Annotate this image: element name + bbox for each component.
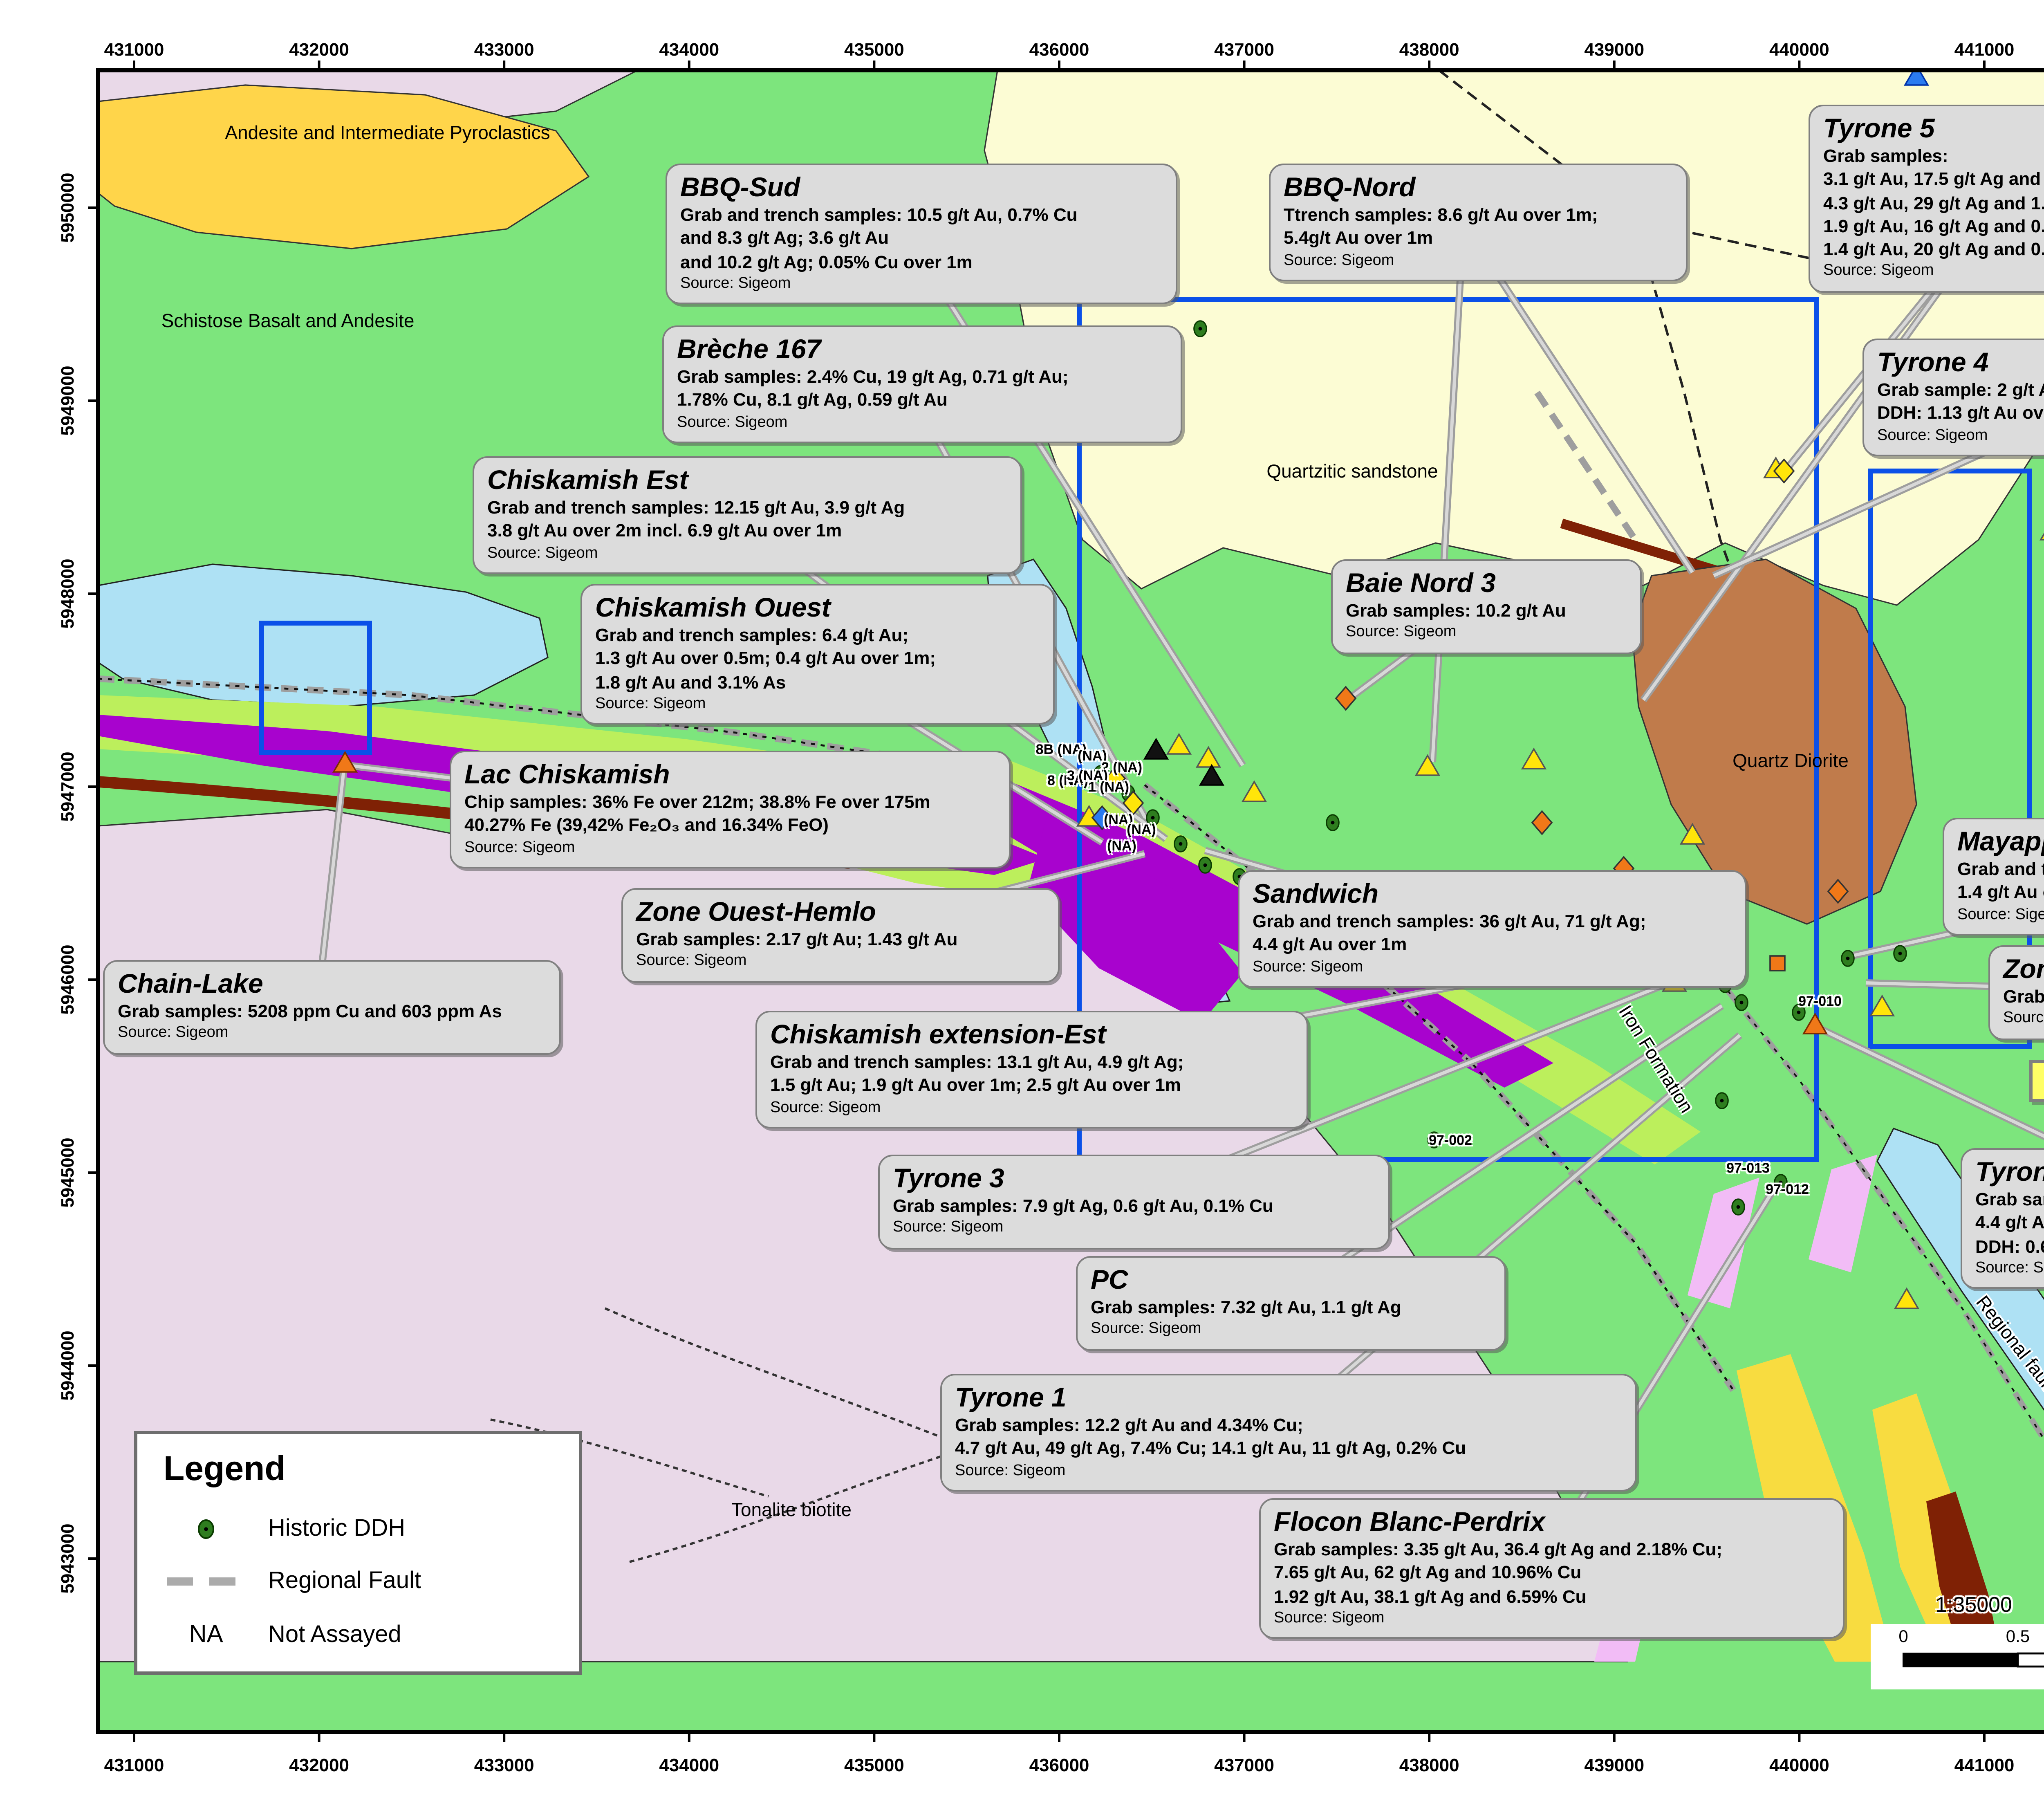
axis-left-5943000: 5943000	[59, 1523, 78, 1593]
callout-line: Grab and trench samples: 3.3 g/t Au; 0.5…	[1957, 859, 2044, 882]
callout-zone-ph: Zone PHGrab sample: 13.8 g/t Au, 17.2 g/…	[1988, 945, 2044, 1039]
tyrone-geology-map-page: 4310004310004320004320004330004330004340…	[0, 0, 2044, 1799]
ddh-label-12: 97-012	[1766, 1181, 1809, 1197]
callout-source: Source: Sigeom	[487, 544, 1007, 564]
legend-title: Legend	[164, 1451, 579, 1490]
scale-bar: 0 0.5 1 Km	[1871, 1624, 2044, 1689]
callout-line: 3.1 g/t Au, 17.5 g/t Ag and 0.95% Cu	[1823, 169, 2044, 192]
callout-line: 1.4 g/t Au, 20 g/t Ag and 0.5% Cu	[1823, 239, 2044, 262]
perseus-annotation: Approximate Location Perseus Nickel Disc…	[2029, 1060, 2044, 1102]
callout-line: Grab and trench samples: 12.15 g/t Au, 3…	[487, 497, 1007, 520]
callout-title: Baie Nord 3	[1346, 569, 1627, 600]
axis-bottom-436000: 436000	[1029, 1756, 1089, 1776]
ddh-dot-icon	[164, 1516, 249, 1542]
callout-line: Grab samples: 3.35 g/t Au, 36.4 g/t Ag a…	[1274, 1539, 1830, 1562]
scale-ratio: 1:35000	[1935, 1592, 2012, 1617]
legend-item-regional-fault: Regional Fault	[164, 1568, 579, 1595]
callout-line: Grab and trench samples: 13.1 g/t Au, 4.…	[770, 1052, 1293, 1075]
callout-breche-167: Brèche 167Grab samples: 2.4% Cu, 19 g/t …	[662, 325, 1182, 443]
axis-bottom-439000: 439000	[1584, 1756, 1644, 1776]
callout-line: Grab samples: 0,5 g/t Au, 18 g/t Ag, and…	[1975, 1189, 2044, 1212]
callout-line: Grab samples:	[1823, 146, 2044, 169]
callout-title: Zone Ouest-Hemlo	[636, 898, 1045, 929]
callout-line: 4.4 g/t Au, 108 g/t Ag and 1.2% Cu	[1975, 1212, 2044, 1236]
callout-source: Source: Sigeom	[1975, 1259, 2044, 1279]
callout-title: Tyrone 2	[1975, 1158, 2044, 1189]
ddh-label-5: 1 (NA)	[1088, 778, 1129, 795]
na-symbol: NA	[164, 1621, 249, 1649]
callout-tyrone-4: Tyrone 4Grab sample: 2 g/t Au, 0.5% Cu a…	[1862, 339, 2044, 456]
callout-tyrone-1: Tyrone 1Grab samples: 12.2 g/t Au and 4.…	[940, 1374, 1637, 1492]
axis-top-431000: 431000	[104, 41, 164, 61]
callout-chiskamish-est: Chiskamish EstGrab and trench samples: 1…	[473, 456, 1022, 574]
axis-top-441000: 441000	[1954, 41, 2015, 61]
callout-title: Flocon Blanc-Perdrix	[1274, 1508, 1830, 1539]
ddh-marker	[1174, 836, 1187, 852]
ddh-marker	[1842, 951, 1854, 966]
callout-line: Grab samples: 7.32 g/t Au, 1.1 g/t Ag	[1091, 1297, 1491, 1320]
callout-line: Grab and trench samples: 6.4 g/t Au;	[595, 625, 1040, 648]
callout-title: Brèche 167	[677, 335, 1168, 366]
callout-line: 1.5 g/t Au; 1.9 g/t Au over 1m; 2.5 g/t …	[770, 1075, 1293, 1098]
ddh-marker	[1894, 946, 1906, 961]
legend-item-not-assayed: NA Not Assayed	[164, 1621, 579, 1649]
callout-source: Source: Sigeom	[636, 952, 1045, 972]
callout-source: Source: Sigeom	[2003, 1009, 2044, 1030]
callout-source: Source: Sigeom	[1253, 958, 1732, 978]
axis-top-435000: 435000	[844, 41, 904, 61]
axis-bottom-431000: 431000	[104, 1756, 164, 1776]
ddh-label-10: 97-002	[1429, 1132, 1472, 1148]
callout-sandwich: SandwichGrab and trench samples: 36 g/t …	[1238, 870, 1746, 988]
callout-source: Source: Sigeom	[893, 1219, 1375, 1239]
callout-chiskamish-extension-est: Chiskamish extension-EstGrab and trench …	[755, 1011, 1308, 1128]
axis-top-436000: 436000	[1029, 41, 1089, 61]
legend-label: Not Assayed	[268, 1622, 401, 1648]
axis-bottom-437000: 437000	[1214, 1756, 1274, 1776]
callout-zone-ouest-hemlo: Zone Ouest-HemloGrab samples: 2.17 g/t A…	[621, 888, 1060, 982]
callout-source: Source: Sigeom	[1957, 905, 2044, 925]
callout-title: Tyrone 1	[955, 1384, 1622, 1415]
callout-line: DDH: 0.6 g/t Au, 8.3 g/t Ag and 1.34% Cu…	[1975, 1236, 2044, 1259]
unit-label-schistose-left: Schistose Basalt and Andesite	[161, 312, 415, 332]
axis-left-5946000: 5946000	[59, 944, 78, 1014]
callout-line: Grab samples: 2.4% Cu, 19 g/t Ag, 0.71 g…	[677, 366, 1168, 390]
ddh-label-7: (NA)	[1127, 821, 1156, 837]
axis-left-5947000: 5947000	[59, 751, 78, 821]
axis-bottom-440000: 440000	[1769, 1756, 1829, 1776]
axis-bottom-433000: 433000	[474, 1756, 534, 1776]
callout-line: 7.65 g/t Au, 62 g/t Ag and 10.96% Cu	[1274, 1562, 1830, 1586]
callout-line: and 8.3 g/t Ag; 3.6 g/t Au	[680, 228, 1163, 251]
callout-title: Mayappo-Sud	[1957, 828, 2044, 859]
callout-flocon-blanc-perdrix: Flocon Blanc-PerdrixGrab samples: 3.35 g…	[1259, 1498, 1845, 1639]
callout-line: 1.3 g/t Au over 0.5m; 0.4 g/t Au over 1m…	[595, 648, 1040, 671]
callout-line: Ttrench samples: 8.6 g/t Au over 1m;	[1284, 204, 1673, 228]
unit-label-quartz-diorite: Quartz Diorite	[1732, 752, 1849, 772]
axis-top-439000: 439000	[1584, 41, 1644, 61]
callout-chiskamish-ouest: Chiskamish OuestGrab and trench samples:…	[580, 584, 1055, 725]
callout-source: Source: Sigeom	[1877, 426, 2044, 446]
axis-bottom-435000: 435000	[844, 1756, 904, 1776]
callout-line: Grab samples: 12.2 g/t Au and 4.34% Cu;	[955, 1415, 1622, 1438]
callout-line: Grab samples: 10.2 g/t Au	[1346, 600, 1627, 624]
callout-line: 4.3 g/t Au, 29 g/t Ag and 1.98% Cu	[1823, 192, 2044, 215]
callout-line: 1.78% Cu, 8.1 g/t Ag, 0.59 g/t Au	[677, 390, 1168, 413]
callout-title: Chiskamish Ouest	[595, 594, 1040, 625]
unit-label-andesite-pyroclastics: Andesite and Intermediate Pyroclastics	[225, 124, 550, 144]
axis-bottom-441000: 441000	[1954, 1756, 2015, 1776]
callout-line: Grab sample: 2 g/t Au, 0.5% Cu and 5.4 g…	[1877, 379, 2044, 403]
callout-line: Grab samples: 2.17 g/t Au; 1.43 g/t Au	[636, 929, 1045, 952]
unit-label-tonalite-biotite: Tonalite biotite	[731, 1501, 852, 1521]
ddh-marker	[1735, 995, 1748, 1010]
callout-title: PC	[1091, 1266, 1491, 1297]
callout-bbq-sud: BBQ-SudGrab and trench samples: 10.5 g/t…	[666, 164, 1177, 305]
ddh-marker	[1194, 321, 1206, 336]
axis-top-434000: 434000	[659, 41, 719, 61]
callout-title: Chain-Lake	[118, 970, 546, 1001]
callout-title: BBQ-Nord	[1284, 173, 1673, 204]
unit-label-quartzitic-sandstone: Quartzitic sandstone	[1266, 463, 1438, 482]
axis-top-437000: 437000	[1214, 41, 1274, 61]
callout-line: 3.8 g/t Au over 2m incl. 6.9 g/t Au over…	[487, 520, 1007, 544]
callout-pc: PCGrab samples: 7.32 g/t Au, 1.1 g/t AgS…	[1076, 1256, 1506, 1350]
ddh-marker	[1199, 857, 1211, 873]
callout-source: Source: Sigeom	[1274, 1609, 1830, 1629]
callout-line: Chip samples: 36% Fe over 212m; 38.8% Fe…	[464, 792, 996, 815]
callout-source: Source: Sigeom	[677, 413, 1168, 433]
callout-chain-lake: Chain-LakeGrab samples: 5208 ppm Cu and …	[103, 960, 561, 1054]
legend-label: Regional Fault	[268, 1568, 421, 1595]
ddh-label-9: 97-010	[1798, 993, 1842, 1009]
callout-source: Source: Sigeom	[118, 1024, 546, 1044]
ddh-marker	[1716, 1093, 1728, 1108]
ddh-label-8: (NA)	[1107, 837, 1136, 854]
callout-line: 1.8 g/t Au and 3.1% As	[595, 671, 1040, 695]
ddh-label-11: 97-013	[1726, 1160, 1770, 1176]
callout-line: Grab and trench samples: 36 g/t Au, 71 g…	[1253, 911, 1732, 934]
callout-source: Source: Sigeom	[770, 1098, 1293, 1118]
legend-item-historic-ddh: Historic DDH	[164, 1516, 579, 1542]
orange-square-marker	[1770, 956, 1785, 971]
callout-title: Zone PH	[2003, 955, 2044, 986]
callout-source: Source: Sigeom	[1091, 1320, 1491, 1340]
axis-bottom-434000: 434000	[659, 1756, 719, 1776]
callout-source: Source: Sigeom	[595, 695, 1040, 715]
axis-left-5945000: 5945000	[59, 1137, 78, 1207]
callout-tyrone-5: Tyrone 5Grab samples:3.1 g/t Au, 17.5 g/…	[1809, 105, 2044, 292]
callout-lac-chiskamish: Lac ChiskamishChip samples: 36% Fe over …	[450, 751, 1011, 868]
callout-line: 1.92 g/t Au, 38.1 g/t Ag and 6.59% Cu	[1274, 1586, 1830, 1609]
ddh-marker	[1732, 1199, 1744, 1215]
axis-top-432000: 432000	[289, 41, 349, 61]
callout-source: Source: Sigeom	[1284, 251, 1673, 271]
callout-line: Grab samples: 5208 ppm Cu and 603 ppm As	[118, 1001, 546, 1024]
callout-line: 1.9 g/t Au, 16 g/t Ag and 0.9% Cu	[1823, 215, 2044, 239]
callout-title: Lac Chiskamish	[464, 760, 996, 792]
callout-source: Source: Sigeom	[1346, 624, 1627, 644]
callout-line: 40.27% Fe (39,42% Fe₂O₃ and 16.34% FeO)	[464, 815, 996, 838]
regional-fault-dash-icon	[164, 1575, 249, 1588]
callout-mayappo-sud: Mayappo-SudGrab and trench samples: 3.3 …	[1943, 818, 2044, 935]
callout-line: 4.7 g/t Au, 49 g/t Ag, 7.4% Cu; 14.1 g/t…	[955, 1438, 1622, 1461]
callout-title: Chiskamish Est	[487, 466, 1007, 497]
callout-source: Source: Sigeom	[680, 274, 1163, 294]
callout-line: 5.4g/t Au over 1m	[1284, 228, 1673, 251]
legend: Legend Historic DDH Regional Fault NA No…	[134, 1431, 582, 1675]
ddh-marker	[1327, 815, 1339, 830]
callout-line: Grab sample: 13.8 g/t Au, 17.2 g/t Ag, 0…	[2003, 986, 2044, 1009]
axis-top-438000: 438000	[1399, 41, 1459, 61]
callout-title: Tyrone 5	[1823, 114, 2044, 146]
axis-top-433000: 433000	[474, 41, 534, 61]
callout-line: Grab and trench samples: 10.5 g/t Au, 0.…	[680, 204, 1163, 228]
axis-left-5948000: 5948000	[59, 559, 78, 628]
callout-line: Grab samples: 7.9 g/t Ag, 0.6 g/t Au, 0.…	[893, 1196, 1375, 1219]
callout-line: 4.4 g/t Au over 1m	[1253, 934, 1732, 958]
callout-line: 1.4 g/t Au over 3m incl. 3.5 g/t Au over…	[1957, 882, 2044, 905]
callout-baie-nord-3: Baie Nord 3Grab samples: 10.2 g/t AuSour…	[1331, 559, 1642, 653]
axis-bottom-432000: 432000	[289, 1756, 349, 1776]
axis-bottom-438000: 438000	[1399, 1756, 1459, 1776]
callout-source: Source: Sigeom	[955, 1461, 1622, 1481]
callout-bbq-nord: BBQ-NordTtrench samples: 8.6 g/t Au over…	[1269, 164, 1688, 281]
axis-left-5949000: 5949000	[59, 366, 78, 435]
callout-title: Chiskamish extension-Est	[770, 1021, 1293, 1052]
axis-left-5950000: 5950000	[59, 173, 78, 242]
callout-source: Source: Sigeom	[1823, 262, 2044, 283]
callout-line: DDH: 1.13 g/t Au over 1.5m	[1877, 403, 2044, 426]
axis-top-440000: 440000	[1769, 41, 1829, 61]
callout-title: Sandwich	[1253, 880, 1732, 911]
callout-title: Tyrone 4	[1877, 348, 2044, 379]
callout-tyrone-3: Tyrone 3Grab samples: 7.9 g/t Ag, 0.6 g/…	[878, 1155, 1390, 1249]
legend-label: Historic DDH	[268, 1516, 405, 1542]
callout-title: BBQ-Sud	[680, 173, 1163, 204]
axis-left-5944000: 5944000	[59, 1330, 78, 1400]
callout-title: Tyrone 3	[893, 1164, 1375, 1196]
callout-source: Source: Sigeom	[464, 838, 996, 858]
callout-line: and 10.2 g/t Ag; 0.05% Cu over 1m	[680, 251, 1163, 274]
callout-tyrone-2: Tyrone 2Grab samples: 0,5 g/t Au, 18 g/t…	[1961, 1148, 2044, 1289]
